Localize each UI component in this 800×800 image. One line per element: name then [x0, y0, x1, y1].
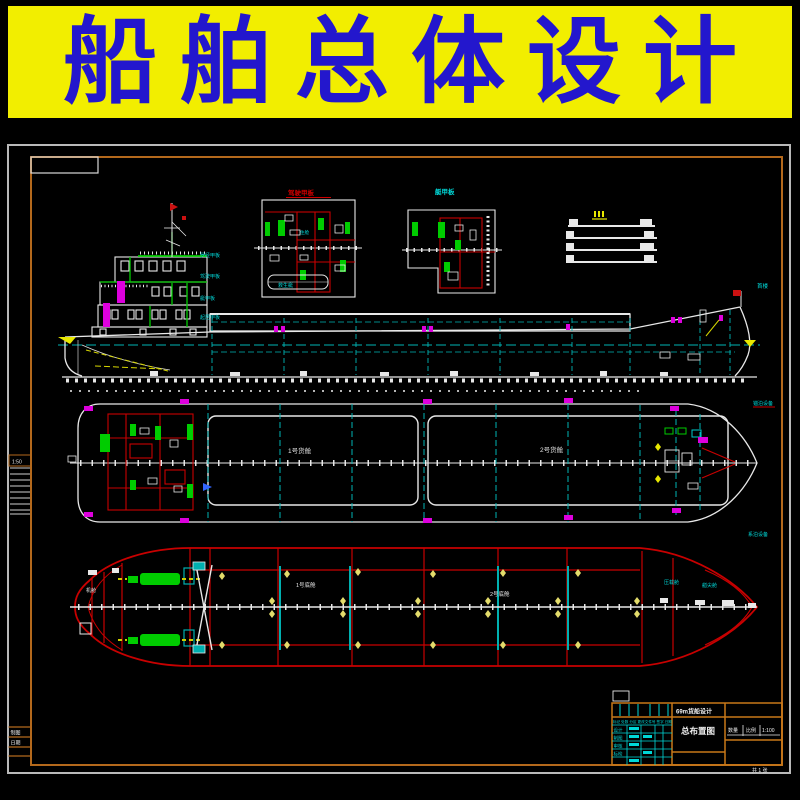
tb-row-1: 制图 — [614, 735, 623, 742]
star-marker — [284, 641, 290, 649]
hold1-label: 1号货舱 — [288, 446, 312, 455]
cad-drawing: 1:50 制图 日期 驾驶甲板 — [0, 140, 800, 800]
sheet-frame — [8, 145, 790, 773]
ship-plan-view: 1号货舱 2号货舱 — [68, 398, 775, 538]
banner-title: 船舶总体设计 — [41, 15, 759, 109]
tb-row-2: 审核 — [614, 743, 623, 750]
star-marker — [340, 610, 346, 618]
star-marker — [355, 568, 361, 576]
plan-windlass — [655, 428, 735, 489]
detail-a-cabin-label: 住舱 — [300, 229, 309, 236]
bottom-bow-cyan1: 压载舱 — [664, 579, 679, 586]
drawing-name: 总布置图 — [681, 726, 715, 736]
mast — [164, 203, 186, 257]
star-marker — [219, 641, 225, 649]
star-marker — [284, 570, 290, 578]
engine-room-label: 机舱 — [86, 587, 96, 594]
plan-bow-label-bottom: 系泊设备 — [748, 531, 768, 538]
title-block: 标记 处数 分区 更改文件号 签字 日期 设计 制图 审核 标检 69m货船设计… — [612, 691, 782, 774]
tb-cell-2: 比例 — [746, 727, 756, 734]
margin-row2-label: 日期 — [11, 741, 21, 747]
star-marker — [219, 572, 225, 580]
hold2-label: 2号货舱 — [540, 445, 564, 454]
star-marker — [355, 641, 361, 649]
star-marker — [634, 610, 640, 618]
tb-cell-3: 1:100 — [762, 728, 775, 734]
star-marker — [555, 597, 561, 605]
star-marker — [415, 597, 421, 605]
margin-scale-label: 1:50 — [12, 460, 22, 466]
star-marker — [634, 597, 640, 605]
bottom-hold1-label: 1号底舱 — [296, 581, 316, 589]
tb-row-0: 设计 — [614, 727, 623, 734]
detail-view-b: 艇甲板 — [402, 187, 502, 293]
deck-label-0: 罗经甲板 — [200, 252, 220, 259]
title-block-header: 标记 处数 分区 更改文件号 签字 日期 — [613, 719, 672, 724]
star-marker — [415, 610, 421, 618]
deck-label-1: 驾驶甲板 — [200, 273, 220, 280]
star-marker — [269, 597, 275, 605]
lifeboat-label: 救生艇 — [278, 282, 293, 289]
detail-a-title: 驾驶甲板 — [288, 188, 315, 197]
star-marker — [500, 641, 506, 649]
star-marker — [555, 610, 561, 618]
tb-cell-1: 数量 — [728, 727, 738, 734]
ship-bottom-view: 机舱 1号底舱 2号底舱 压载舱 艏尖舱 — [70, 548, 757, 666]
sheet-note: 共 1 张 — [752, 767, 768, 774]
plan-bow-label-top: 锚泊设备 — [753, 400, 773, 407]
star-marker — [430, 570, 436, 578]
detail-b-title: 艇甲板 — [434, 187, 455, 196]
mast-pennant — [170, 203, 178, 211]
deck-edge-lines — [100, 232, 207, 327]
bow-flag — [733, 290, 741, 296]
frame-star-markers — [219, 568, 640, 649]
star-marker — [485, 610, 491, 618]
deck-label-2: 艇甲板 — [200, 295, 215, 302]
star-marker — [340, 597, 346, 605]
screenshot-root: 船舶总体设计 1:50 制图 日期 驾驶甲板 — [0, 0, 800, 800]
detail-view-a: 驾驶甲板 — [254, 188, 362, 297]
star-marker — [485, 597, 491, 605]
star-marker — [269, 610, 275, 618]
deck-label-3: 起居甲板 — [200, 314, 220, 321]
side-bow-label: 首楼 — [757, 282, 769, 290]
bottom-hold2-label: 2号底舱 — [490, 590, 510, 598]
deck-stack-view — [566, 211, 657, 262]
tb-row-3: 标检 — [614, 751, 623, 758]
star-marker — [575, 641, 581, 649]
plan-deck-markers — [84, 398, 681, 523]
banner: 船舶总体设计 — [8, 6, 792, 118]
bottom-bow-cyan2: 艏尖舱 — [702, 582, 717, 589]
project-name: 69m货船设计 — [676, 708, 712, 716]
margin-row1-label: 制图 — [11, 730, 21, 737]
funnels — [103, 281, 125, 327]
star-marker — [430, 641, 436, 649]
anchor-mark — [744, 340, 756, 347]
